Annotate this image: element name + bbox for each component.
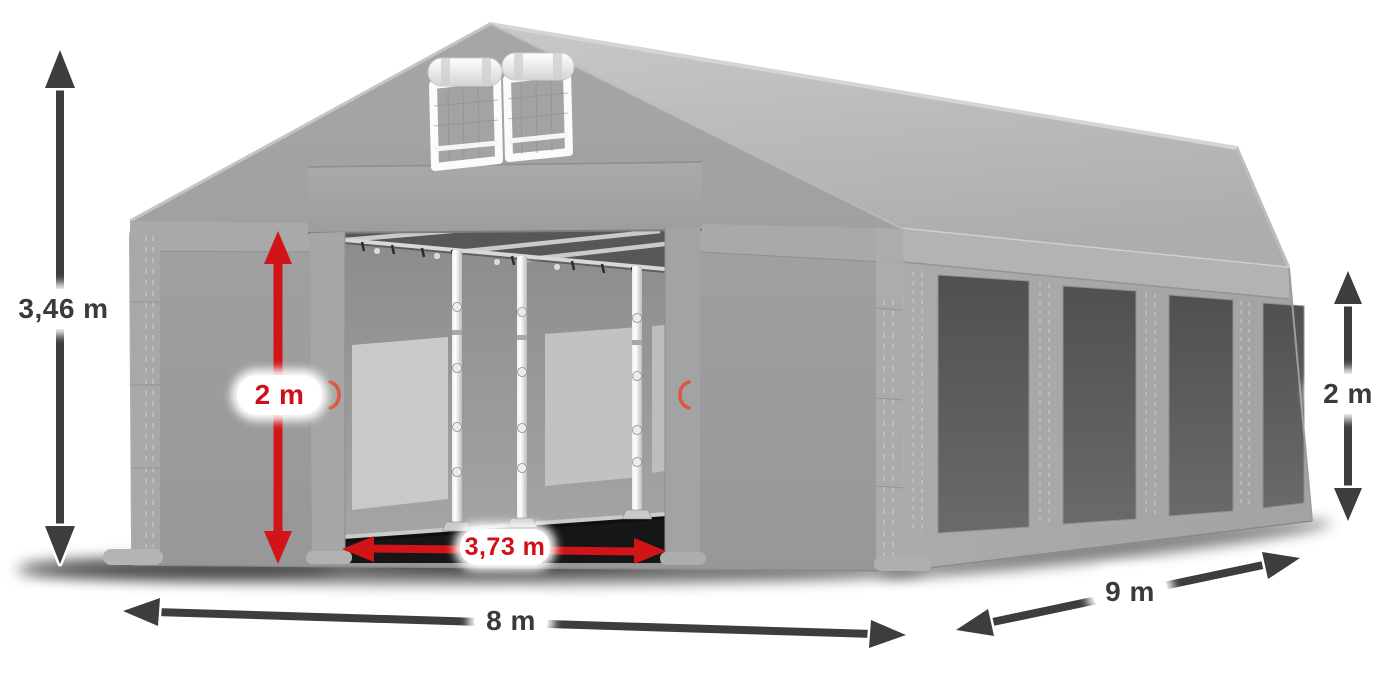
tent-side-wall (903, 229, 1312, 571)
entrance-width-value: 3,73 m (465, 533, 546, 562)
side-wall-height-label: 2 m (1311, 374, 1385, 414)
side-length-label: 9 m (1092, 572, 1168, 612)
entrance-header-panel (308, 162, 702, 233)
side-wall-height-value: 2 m (1323, 378, 1373, 410)
entrance-interior (344, 228, 666, 563)
entrance-height-value: 2 m (255, 379, 305, 411)
vent-window-right (507, 73, 569, 158)
tent-dimension-diagram: 3,46 m 2 m 3,73 m 8 m 9 m 2 m (0, 0, 1400, 700)
entrance-width-label: 3,73 m (460, 529, 550, 565)
tent-illustration (0, 0, 1400, 700)
side-length-value: 9 m (1105, 576, 1155, 608)
entrance-height-label: 2 m (237, 375, 322, 415)
total-height-label: 3,46 m (17, 289, 110, 329)
gable-vent-windows (428, 53, 574, 167)
front-width-value: 8 m (486, 605, 536, 637)
total-height-value: 3,46 m (18, 293, 108, 325)
front-width-label: 8 m (474, 601, 548, 641)
vent-window-left (433, 78, 499, 167)
vent-roll-right (502, 53, 574, 80)
